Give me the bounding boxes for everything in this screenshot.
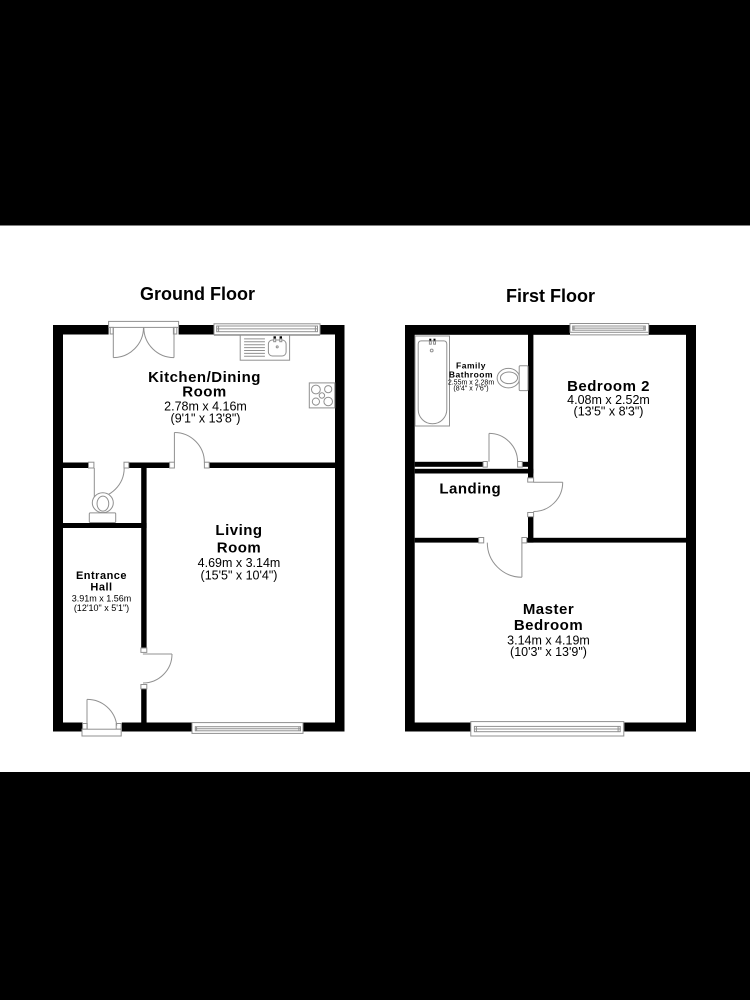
svg-text:(8'4" x 7'6"): (8'4" x 7'6") bbox=[453, 386, 488, 393]
svg-text:(13'5" x 8'3"): (13'5" x 8'3") bbox=[574, 405, 644, 419]
svg-text:(15'5" x 10'4"): (15'5" x 10'4") bbox=[201, 568, 278, 582]
svg-text:Hall: Hall bbox=[90, 582, 112, 594]
svg-text:Landing: Landing bbox=[439, 480, 501, 497]
svg-text:Room: Room bbox=[217, 539, 262, 556]
svg-text:(9'1" x 13'8"): (9'1" x 13'8") bbox=[171, 411, 241, 425]
svg-text:(10'3" x 13'9"): (10'3" x 13'9") bbox=[510, 645, 587, 659]
svg-text:Bathroom: Bathroom bbox=[449, 370, 493, 380]
svg-text:Bedroom: Bedroom bbox=[514, 617, 583, 634]
svg-text:(12'10" x 5'1"): (12'10" x 5'1") bbox=[74, 603, 129, 613]
svg-text:First Floor: First Floor bbox=[506, 286, 595, 306]
svg-text:Master: Master bbox=[523, 601, 574, 618]
svg-text:Living: Living bbox=[215, 522, 262, 539]
svg-text:3.91m x 1.56m: 3.91m x 1.56m bbox=[72, 593, 132, 603]
svg-text:Entrance: Entrance bbox=[76, 570, 127, 582]
svg-text:Ground Floor: Ground Floor bbox=[140, 284, 255, 304]
svg-text:Room: Room bbox=[182, 384, 227, 401]
